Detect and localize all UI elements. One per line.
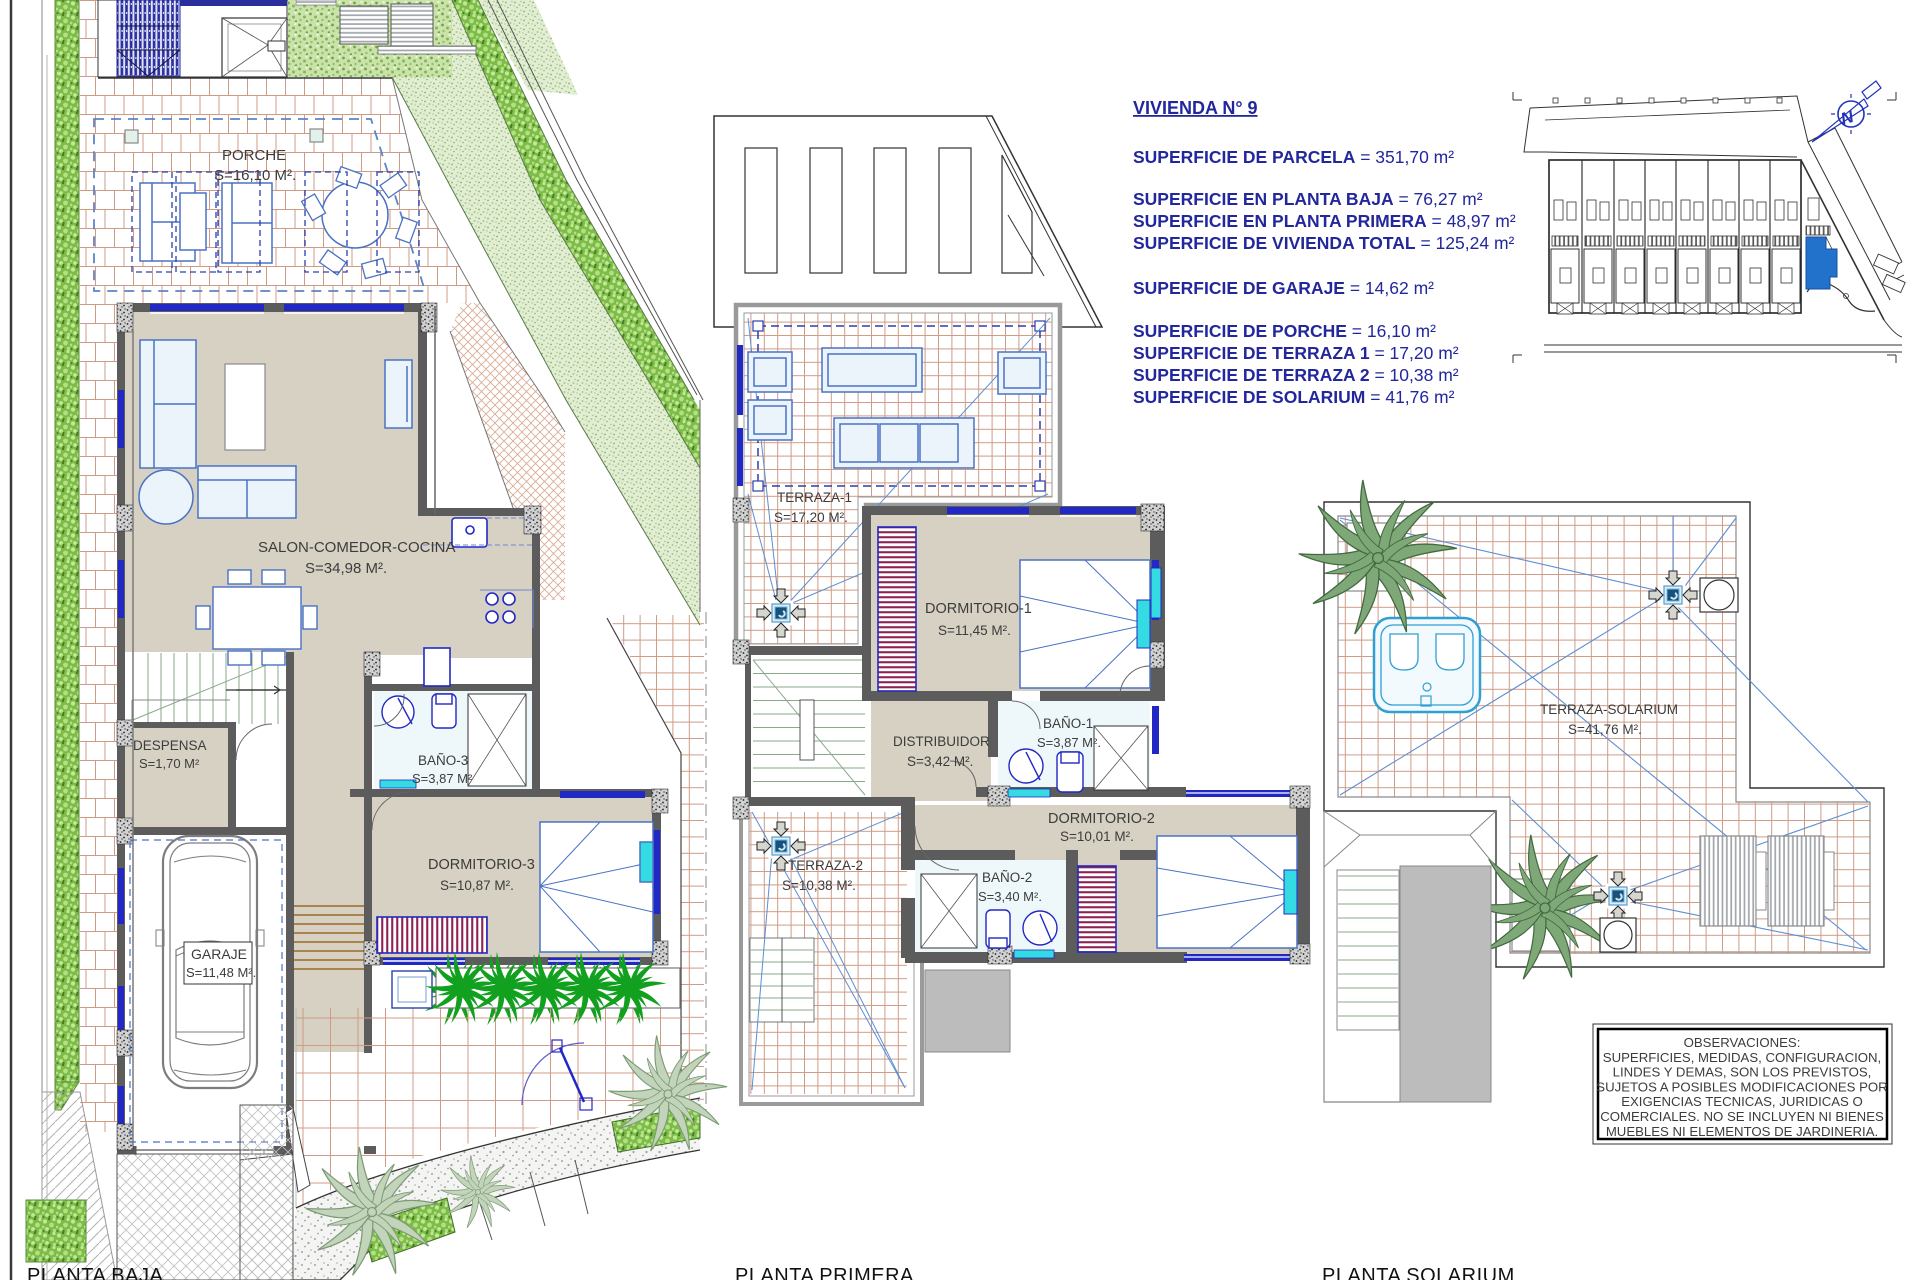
svg-text:GARAJE: GARAJE bbox=[191, 946, 247, 962]
svg-text:TERRAZA-1: TERRAZA-1 bbox=[777, 490, 852, 505]
svg-text:SUPERFICIE DE TERRAZA 2 = 10,3: SUPERFICIE DE TERRAZA 2 = 10,38 m² bbox=[1133, 365, 1459, 385]
svg-text:SUPERFICIE DE PORCHE = 16,10 m: SUPERFICIE DE PORCHE = 16,10 m² bbox=[1133, 321, 1436, 341]
svg-text:SUPERFICIE EN PLANTA PRIMERA =: SUPERFICIE EN PLANTA PRIMERA = 48,97 m² bbox=[1133, 211, 1516, 231]
svg-text:S=10,38 M².: S=10,38 M². bbox=[782, 878, 856, 893]
svg-text:DORMITORIO-1: DORMITORIO-1 bbox=[925, 601, 1032, 617]
svg-text:S=10,01 M².: S=10,01 M². bbox=[1060, 829, 1134, 844]
svg-text:PLANTA BAJA: PLANTA BAJA bbox=[27, 1265, 163, 1280]
svg-text:DESPENSA: DESPENSA bbox=[133, 738, 207, 753]
svg-text:BAÑO-2: BAÑO-2 bbox=[982, 870, 1032, 885]
svg-text:S=17,20 M².: S=17,20 M². bbox=[774, 510, 848, 525]
svg-text:EXIGENCIAS TECNICAS, JURIDICAS: EXIGENCIAS TECNICAS, JURIDICAS O bbox=[1621, 1094, 1863, 1109]
svg-text:LINDES Y DEMAS, SON LOS PREVIS: LINDES Y DEMAS, SON LOS PREVISTOS, bbox=[1613, 1065, 1872, 1080]
svg-text:S=3,40 M².: S=3,40 M². bbox=[978, 889, 1042, 904]
svg-text:SUPERFICIE EN PLANTA BAJA = 76: SUPERFICIE EN PLANTA BAJA = 76,27 m² bbox=[1133, 189, 1483, 209]
svg-text:SUPERFICIE DE TERRAZA 1 = 17,2: SUPERFICIE DE TERRAZA 1 = 17,20 m² bbox=[1133, 343, 1459, 363]
svg-text:S=3,42 M².: S=3,42 M². bbox=[907, 754, 973, 769]
svg-text:S=16,10 M².: S=16,10 M². bbox=[214, 167, 296, 184]
svg-text:S=11,45 M².: S=11,45 M². bbox=[938, 623, 1011, 638]
svg-text:SUPERFICIE DE PARCELA = 351,70: SUPERFICIE DE PARCELA = 351,70 m² bbox=[1133, 147, 1454, 167]
svg-text:MUEBLES NI ELEMENTOS DE JARDIN: MUEBLES NI ELEMENTOS DE JARDINERIA. bbox=[1606, 1124, 1878, 1139]
svg-text:S=1,70 M²: S=1,70 M² bbox=[139, 756, 200, 771]
svg-text:SUPERFICIE DE SOLARIUM = 41,76: SUPERFICIE DE SOLARIUM = 41,76 m² bbox=[1133, 387, 1455, 407]
svg-text:SUPERFICIES, MEDIDAS, CONFIGUR: SUPERFICIES, MEDIDAS, CONFIGURACION, bbox=[1603, 1050, 1881, 1065]
svg-text:S=3,87 M².: S=3,87 M². bbox=[1037, 735, 1101, 750]
svg-text:BAÑO-1: BAÑO-1 bbox=[1043, 716, 1093, 731]
svg-text:PLANTA SOLARIUM: PLANTA SOLARIUM bbox=[1322, 1265, 1515, 1280]
svg-text:COMERCIALES. NO SE INCLUYEN NI: COMERCIALES. NO SE INCLUYEN NI BIENES bbox=[1600, 1109, 1884, 1124]
svg-text:SUJETOS A POSIBLES MODIFICACIO: SUJETOS A POSIBLES MODIFICACIONES POR bbox=[1596, 1079, 1887, 1094]
svg-text:VIVIENDA N° 9: VIVIENDA N° 9 bbox=[1133, 98, 1258, 118]
svg-text:S=11,48 M².: S=11,48 M². bbox=[186, 965, 256, 980]
svg-text:OBSERVACIONES:: OBSERVACIONES: bbox=[1684, 1035, 1801, 1050]
svg-text:BAÑO-3: BAÑO-3 bbox=[418, 753, 468, 768]
svg-text:SUPERFICIE DE GARAJE = 14,62 m: SUPERFICIE DE GARAJE = 14,62 m² bbox=[1133, 278, 1434, 298]
svg-text:PLANTA PRIMERA: PLANTA PRIMERA bbox=[735, 1265, 914, 1280]
svg-text:DORMITORIO-3: DORMITORIO-3 bbox=[428, 857, 535, 873]
svg-text:S=10,87 M².: S=10,87 M². bbox=[440, 878, 514, 893]
svg-text:TERRAZA-2: TERRAZA-2 bbox=[788, 858, 863, 873]
svg-text:S=41,76 M².: S=41,76 M². bbox=[1568, 722, 1642, 737]
svg-text:TERRAZA-SOLARIUM: TERRAZA-SOLARIUM bbox=[1540, 702, 1678, 717]
svg-text:S=3,87 M²: S=3,87 M² bbox=[412, 771, 473, 786]
svg-text:S=34,98 M².: S=34,98 M². bbox=[305, 560, 387, 577]
svg-text:SALON-COMEDOR-COCINA: SALON-COMEDOR-COCINA bbox=[258, 539, 456, 556]
svg-text:DORMITORIO-2: DORMITORIO-2 bbox=[1048, 811, 1155, 827]
svg-text:PORCHE: PORCHE bbox=[222, 147, 286, 164]
svg-text:DISTRIBUIDOR: DISTRIBUIDOR bbox=[893, 734, 990, 749]
svg-text:SUPERFICIE DE VIVIENDA TOTAL =: SUPERFICIE DE VIVIENDA TOTAL = 125,24 m² bbox=[1133, 233, 1515, 253]
